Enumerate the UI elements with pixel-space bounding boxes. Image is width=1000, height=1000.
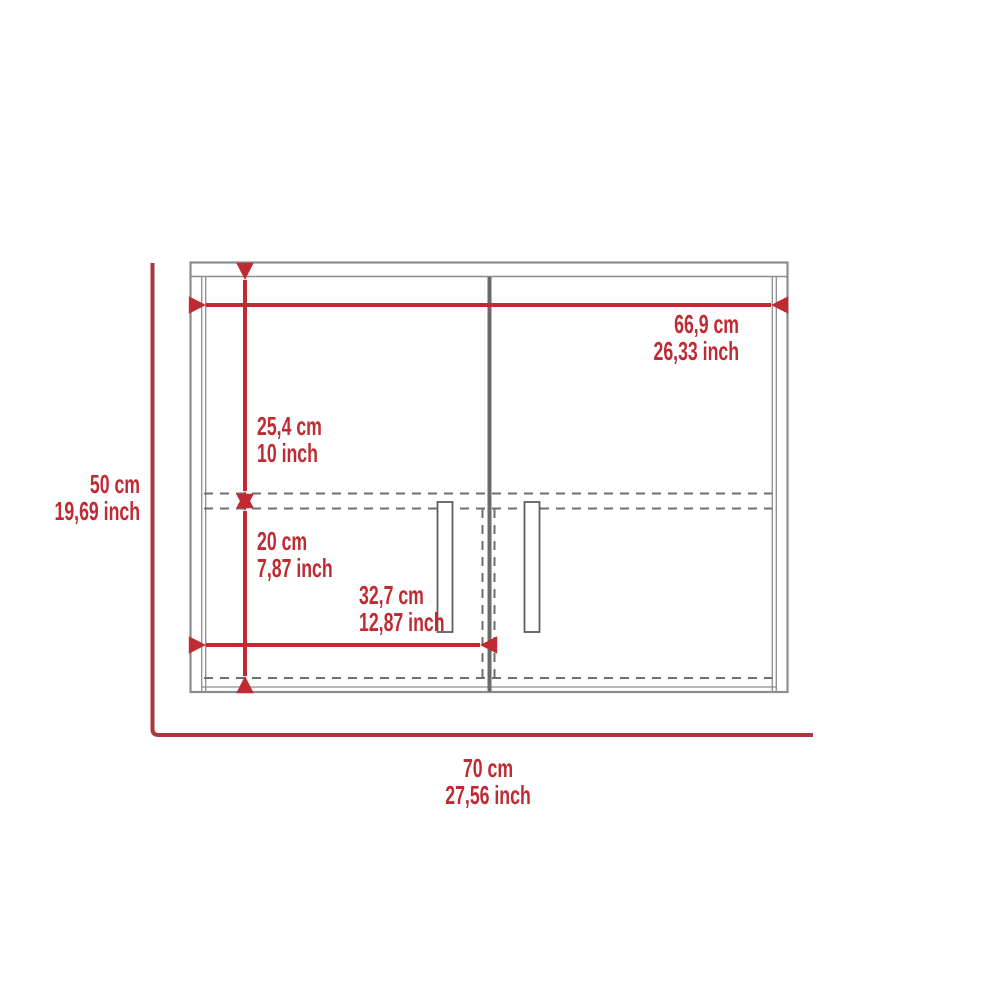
inner-width-label: 66,9 cm 26,33 inch — [535, 311, 739, 365]
door-section-width-label: 32,7 cm 12,87 inch — [359, 582, 444, 636]
inner-width-cm: 66,9 cm — [535, 311, 739, 338]
dimension-diagram: 66,9 cm 26,33 inch 25,4 cm 10 inch 50 cm… — [0, 0, 1000, 1000]
cabinet-drawing — [0, 0, 1000, 1000]
upper-section-height-inch: 10 inch — [257, 440, 322, 467]
door-section-width-cm: 32,7 cm — [359, 582, 444, 609]
overall-height-label: 50 cm 19,69 inch — [45, 471, 140, 525]
overall-height-cm: 50 cm — [45, 471, 140, 498]
overall-width-inch: 27,56 inch — [386, 782, 590, 809]
overall-width-cm: 70 cm — [386, 755, 590, 782]
lower-section-height-label: 20 cm 7,87 inch — [257, 528, 333, 582]
upper-section-height-label: 25,4 cm 10 inch — [257, 413, 322, 467]
overall-height-inch: 19,69 inch — [45, 498, 140, 525]
upper-section-height-cm: 25,4 cm — [257, 413, 322, 440]
lower-section-height-cm: 20 cm — [257, 528, 333, 555]
lower-section-height-inch: 7,87 inch — [257, 555, 333, 582]
overall-width-label: 70 cm 27,56 inch — [386, 755, 590, 809]
door-section-width-inch: 12,87 inch — [359, 609, 444, 636]
right-door-handle — [525, 502, 540, 632]
inner-width-inch: 26,33 inch — [535, 338, 739, 365]
